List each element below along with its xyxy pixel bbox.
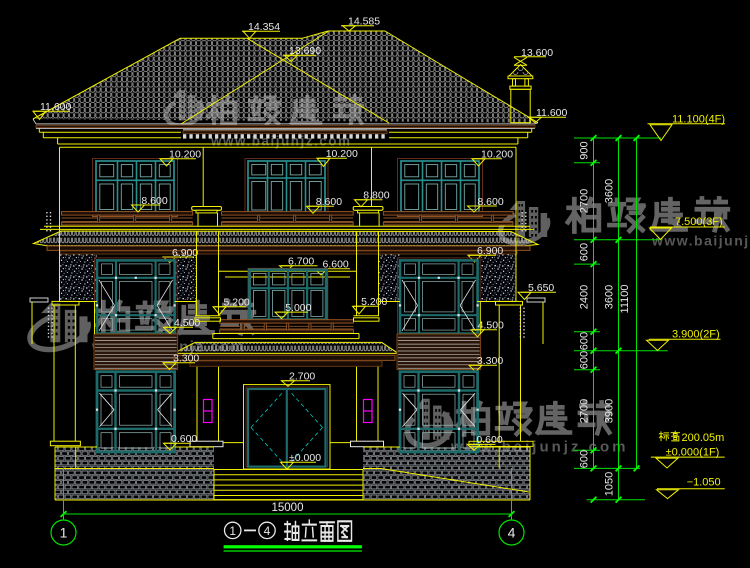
svg-text:4: 4	[508, 525, 516, 541]
svg-text:1: 1	[60, 525, 68, 541]
svg-text:15000: 15000	[272, 502, 304, 514]
svg-text:2700: 2700	[579, 189, 591, 213]
svg-text:www.baijunjz.com: www.baijunjz.com	[651, 233, 750, 249]
svg-text:600: 600	[579, 351, 591, 369]
svg-text:200.05m: 200.05m	[682, 432, 725, 444]
svg-text:600: 600	[579, 243, 591, 261]
svg-text:2700: 2700	[579, 399, 591, 423]
svg-text:1: 1	[229, 524, 236, 538]
svg-text:3.900(2F): 3.900(2F)	[672, 329, 720, 341]
svg-text:11100: 11100	[619, 285, 631, 314]
svg-text:1050: 1050	[604, 472, 616, 496]
svg-text:2400: 2400	[579, 285, 591, 309]
svg-text:3600: 3600	[604, 285, 616, 309]
svg-text:600: 600	[579, 332, 591, 350]
svg-text:900: 900	[579, 141, 591, 159]
svg-text:3600: 3600	[604, 179, 616, 203]
svg-text:−1.050: −1.050	[687, 477, 721, 489]
svg-text:7.500(3F): 7.500(3F)	[675, 216, 723, 228]
svg-text:3900: 3900	[604, 399, 616, 423]
svg-text:600: 600	[579, 450, 591, 468]
svg-text:4: 4	[264, 524, 271, 538]
